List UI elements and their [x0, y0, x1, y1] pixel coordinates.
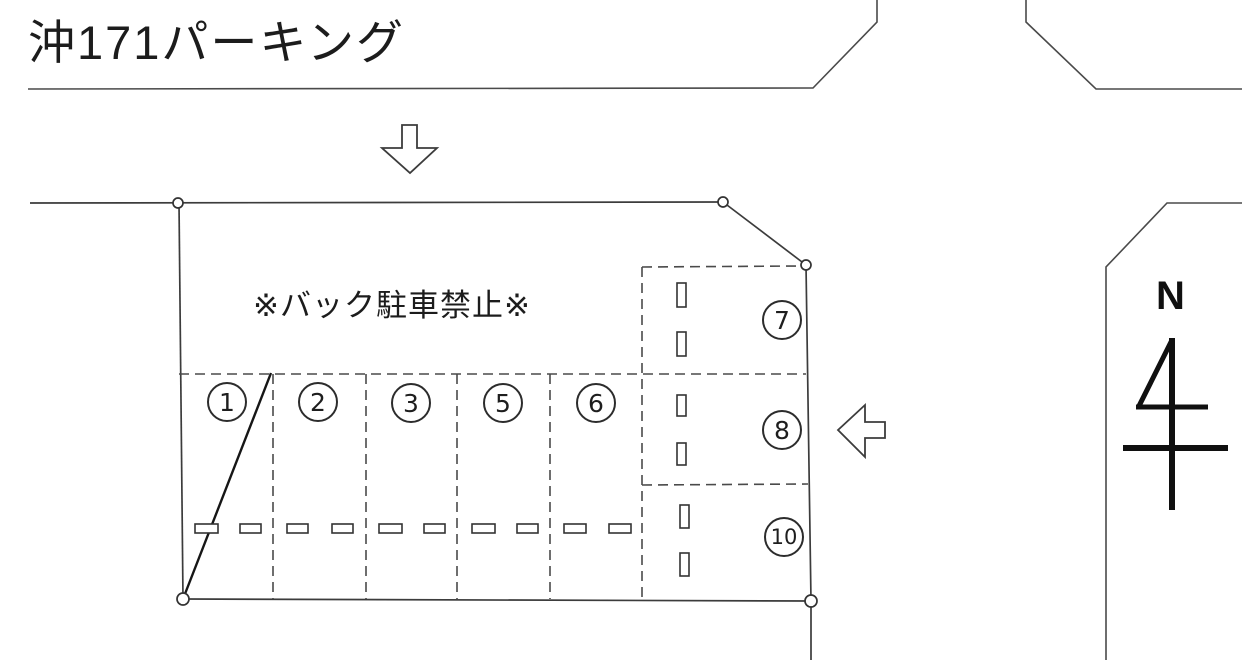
drawing-linework: [0, 0, 1242, 660]
page-title: 沖171パーキング: [28, 4, 405, 73]
entrance-down-arrow-icon: [382, 125, 437, 173]
wheel-stop-blocks-row: [195, 524, 631, 533]
spot-number: 7: [774, 306, 790, 335]
spot-number: 5: [495, 389, 511, 418]
lot-boundary: [30, 202, 811, 660]
spot-number: 8: [774, 416, 790, 445]
wheel-stop-blocks-side: [677, 283, 689, 576]
parking-spot-3: 3: [391, 383, 431, 423]
parking-spot-8: 8: [762, 410, 802, 450]
no-back-parking-note: ※バック駐車禁止※: [253, 280, 531, 325]
north-label: N: [1156, 274, 1185, 319]
parking-spot-6: 6: [576, 383, 616, 423]
parking-spot-5: 5: [483, 383, 523, 423]
side-left-arrow-icon: [838, 405, 885, 457]
parking-spot-1: 1: [207, 382, 247, 422]
parking-spot-10: 10: [764, 517, 804, 557]
north-symbol-icon: [1123, 338, 1228, 510]
parking-layout-drawing: 沖171パーキング ※バック駐車禁止※ N 1 2 3 5 6 7 8 10: [0, 0, 1242, 660]
parking-spot-7: 7: [762, 300, 802, 340]
spot-number: 10: [771, 525, 798, 549]
road-lines: [28, 0, 1242, 660]
spot-number: 3: [403, 389, 419, 418]
spot-number: 6: [588, 389, 604, 418]
spot-number: 2: [310, 388, 326, 417]
parking-spot-2: 2: [298, 382, 338, 422]
spot-number: 1: [219, 388, 235, 417]
